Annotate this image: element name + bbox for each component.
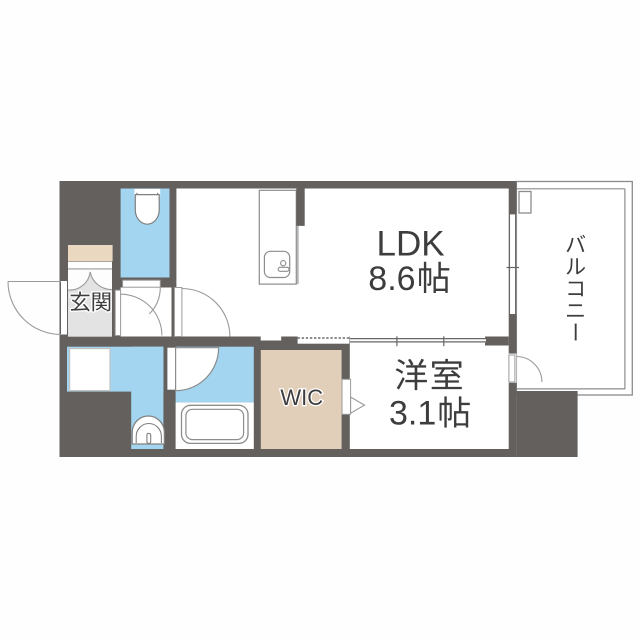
svg-text:LDK: LDK — [377, 225, 445, 264]
svg-text:3.1: 3.1 — [389, 395, 436, 433]
svg-text:WIC: WIC — [280, 385, 323, 410]
svg-text:8.6: 8.6 — [368, 260, 415, 298]
